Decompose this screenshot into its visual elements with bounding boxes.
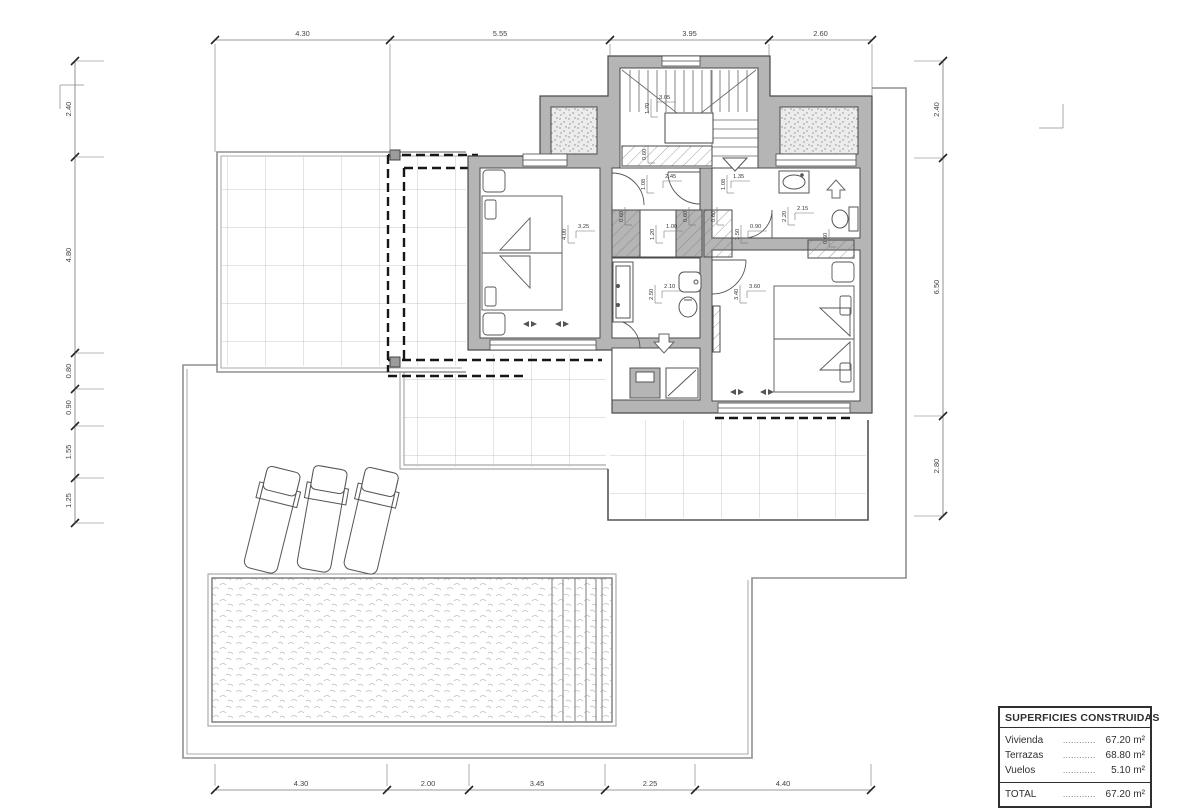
interior-dim-label: 1.00: [666, 224, 677, 230]
dim-label: 2.25: [643, 779, 658, 788]
interior-dim-label: 2.10: [664, 284, 675, 290]
row-leader: ............: [1063, 733, 1102, 748]
dim-label: 3.45: [530, 779, 545, 788]
wardrobe: [704, 210, 732, 257]
dim-label: 2.60: [813, 29, 828, 38]
pool: [208, 574, 616, 726]
interior-dim-label: 0.60: [683, 211, 689, 222]
total-label: TOTAL: [1005, 787, 1063, 802]
row-value: 67.20 m²: [1102, 733, 1145, 748]
floor-plan-canvas: 4.305.553.952.604.302.003.452.254.402.40…: [0, 0, 1200, 810]
dim-label: 5.55: [493, 29, 508, 38]
sun-lounger: [339, 466, 403, 577]
interior-dim-label: 3.40: [734, 289, 740, 300]
interior-dim-label: 0.60: [823, 233, 829, 244]
table-row: Vuelos ............ 5.10 m²: [1005, 763, 1145, 778]
window: [523, 154, 567, 166]
washbasin: [779, 171, 809, 193]
interior-dim-label: 1.08: [721, 179, 727, 190]
bidet: [679, 297, 697, 317]
window: [662, 56, 700, 66]
row-label: Vuelos: [1005, 763, 1063, 778]
sun-lounger: [292, 464, 351, 574]
dim-label: 3.95: [682, 29, 697, 38]
table-row: Terrazas ............ 68.80 m²: [1005, 748, 1145, 763]
wardrobe: [612, 210, 640, 257]
row-leader: ............: [1063, 763, 1107, 778]
dim-label: 1.25: [64, 493, 73, 508]
dimension-chain-bottom: 4.302.003.452.254.40: [211, 764, 875, 794]
toilet: [679, 272, 701, 292]
towel-rail: [713, 306, 720, 352]
dim-label: 6.50: [932, 280, 941, 295]
interior-dim-label: 0.60: [642, 149, 648, 160]
dim-label: 1.55: [64, 445, 73, 460]
interior-dim-label: 0.60: [711, 211, 717, 222]
interior-dim-label: 1.20: [650, 229, 656, 240]
row-label: Terrazas: [1005, 748, 1063, 763]
dim-label: 2.40: [932, 102, 941, 117]
interior-dim-label: 3.60: [749, 284, 760, 290]
dim-label: 4.40: [776, 779, 791, 788]
table-total-row: TOTAL ............ 67.20 m²: [1000, 782, 1150, 806]
areas-table: SUPERFICIES CONSTRUIDAS Vivienda .......…: [998, 706, 1152, 808]
shower: [666, 368, 698, 398]
understair-closet: [622, 146, 712, 166]
dim-label: 4.30: [295, 29, 310, 38]
interior-dim-label: 1.50: [735, 229, 741, 240]
right-planter: [780, 107, 858, 154]
interior-dim-label: 0.90: [750, 224, 761, 230]
dim-label: 2.80: [932, 459, 941, 474]
interior-dim-label: 1.08: [641, 179, 647, 190]
corridor-mid: [640, 210, 676, 257]
table-row: Vivienda ............ 67.20 m²: [1005, 733, 1145, 748]
interior-dim-label: 2.45: [665, 174, 676, 180]
floorplan-sheet: 4.305.553.952.604.302.003.452.254.402.40…: [0, 0, 1200, 810]
interior-dim-label: 4.00: [562, 229, 568, 240]
dim-label: 0.80: [64, 364, 73, 379]
interior-dim-label: 3.05: [659, 95, 670, 101]
dimension-chain-right: 2.406.502.80: [914, 57, 947, 520]
hallway: [612, 168, 700, 210]
left-planter: [551, 107, 597, 154]
interior-dim-label: 1.35: [733, 174, 744, 180]
dim-label: 4.80: [64, 248, 73, 263]
wardrobe: [808, 240, 854, 258]
dim-label: 4.30: [294, 779, 309, 788]
vanity-sink: [613, 262, 633, 322]
overhang-post: [390, 150, 400, 160]
dim-label: 0.90: [64, 400, 73, 415]
dim-label: 2.00: [421, 779, 436, 788]
entry-steps: [630, 368, 660, 398]
interior-dim-label: 0.60: [619, 211, 625, 222]
stair-landing: [665, 113, 713, 143]
interior-dim-label: 2.15: [797, 206, 808, 212]
window: [718, 403, 850, 413]
total-leader: ............: [1063, 787, 1102, 802]
row-label: Vivienda: [1005, 733, 1063, 748]
dim-label: 2.40: [64, 102, 73, 117]
interior-dim-label: 1.70: [645, 103, 651, 114]
sun-lounger: [239, 464, 305, 575]
row-value: 68.80 m²: [1102, 748, 1145, 763]
total-value: 67.20 m²: [1102, 787, 1145, 802]
dimension-chain-left: 2.404.800.800.901.551.25: [64, 57, 104, 527]
window: [490, 340, 596, 350]
interior-dim-label: 2.50: [649, 289, 655, 300]
row-leader: ............: [1063, 748, 1102, 763]
interior-dim-label: 3.25: [578, 224, 589, 230]
row-value: 5.10 m²: [1107, 763, 1145, 778]
areas-table-title: SUPERFICIES CONSTRUIDAS: [1000, 708, 1150, 728]
window: [776, 154, 856, 166]
overhang-post: [390, 357, 400, 367]
interior-dim-label: 2.20: [782, 211, 788, 222]
